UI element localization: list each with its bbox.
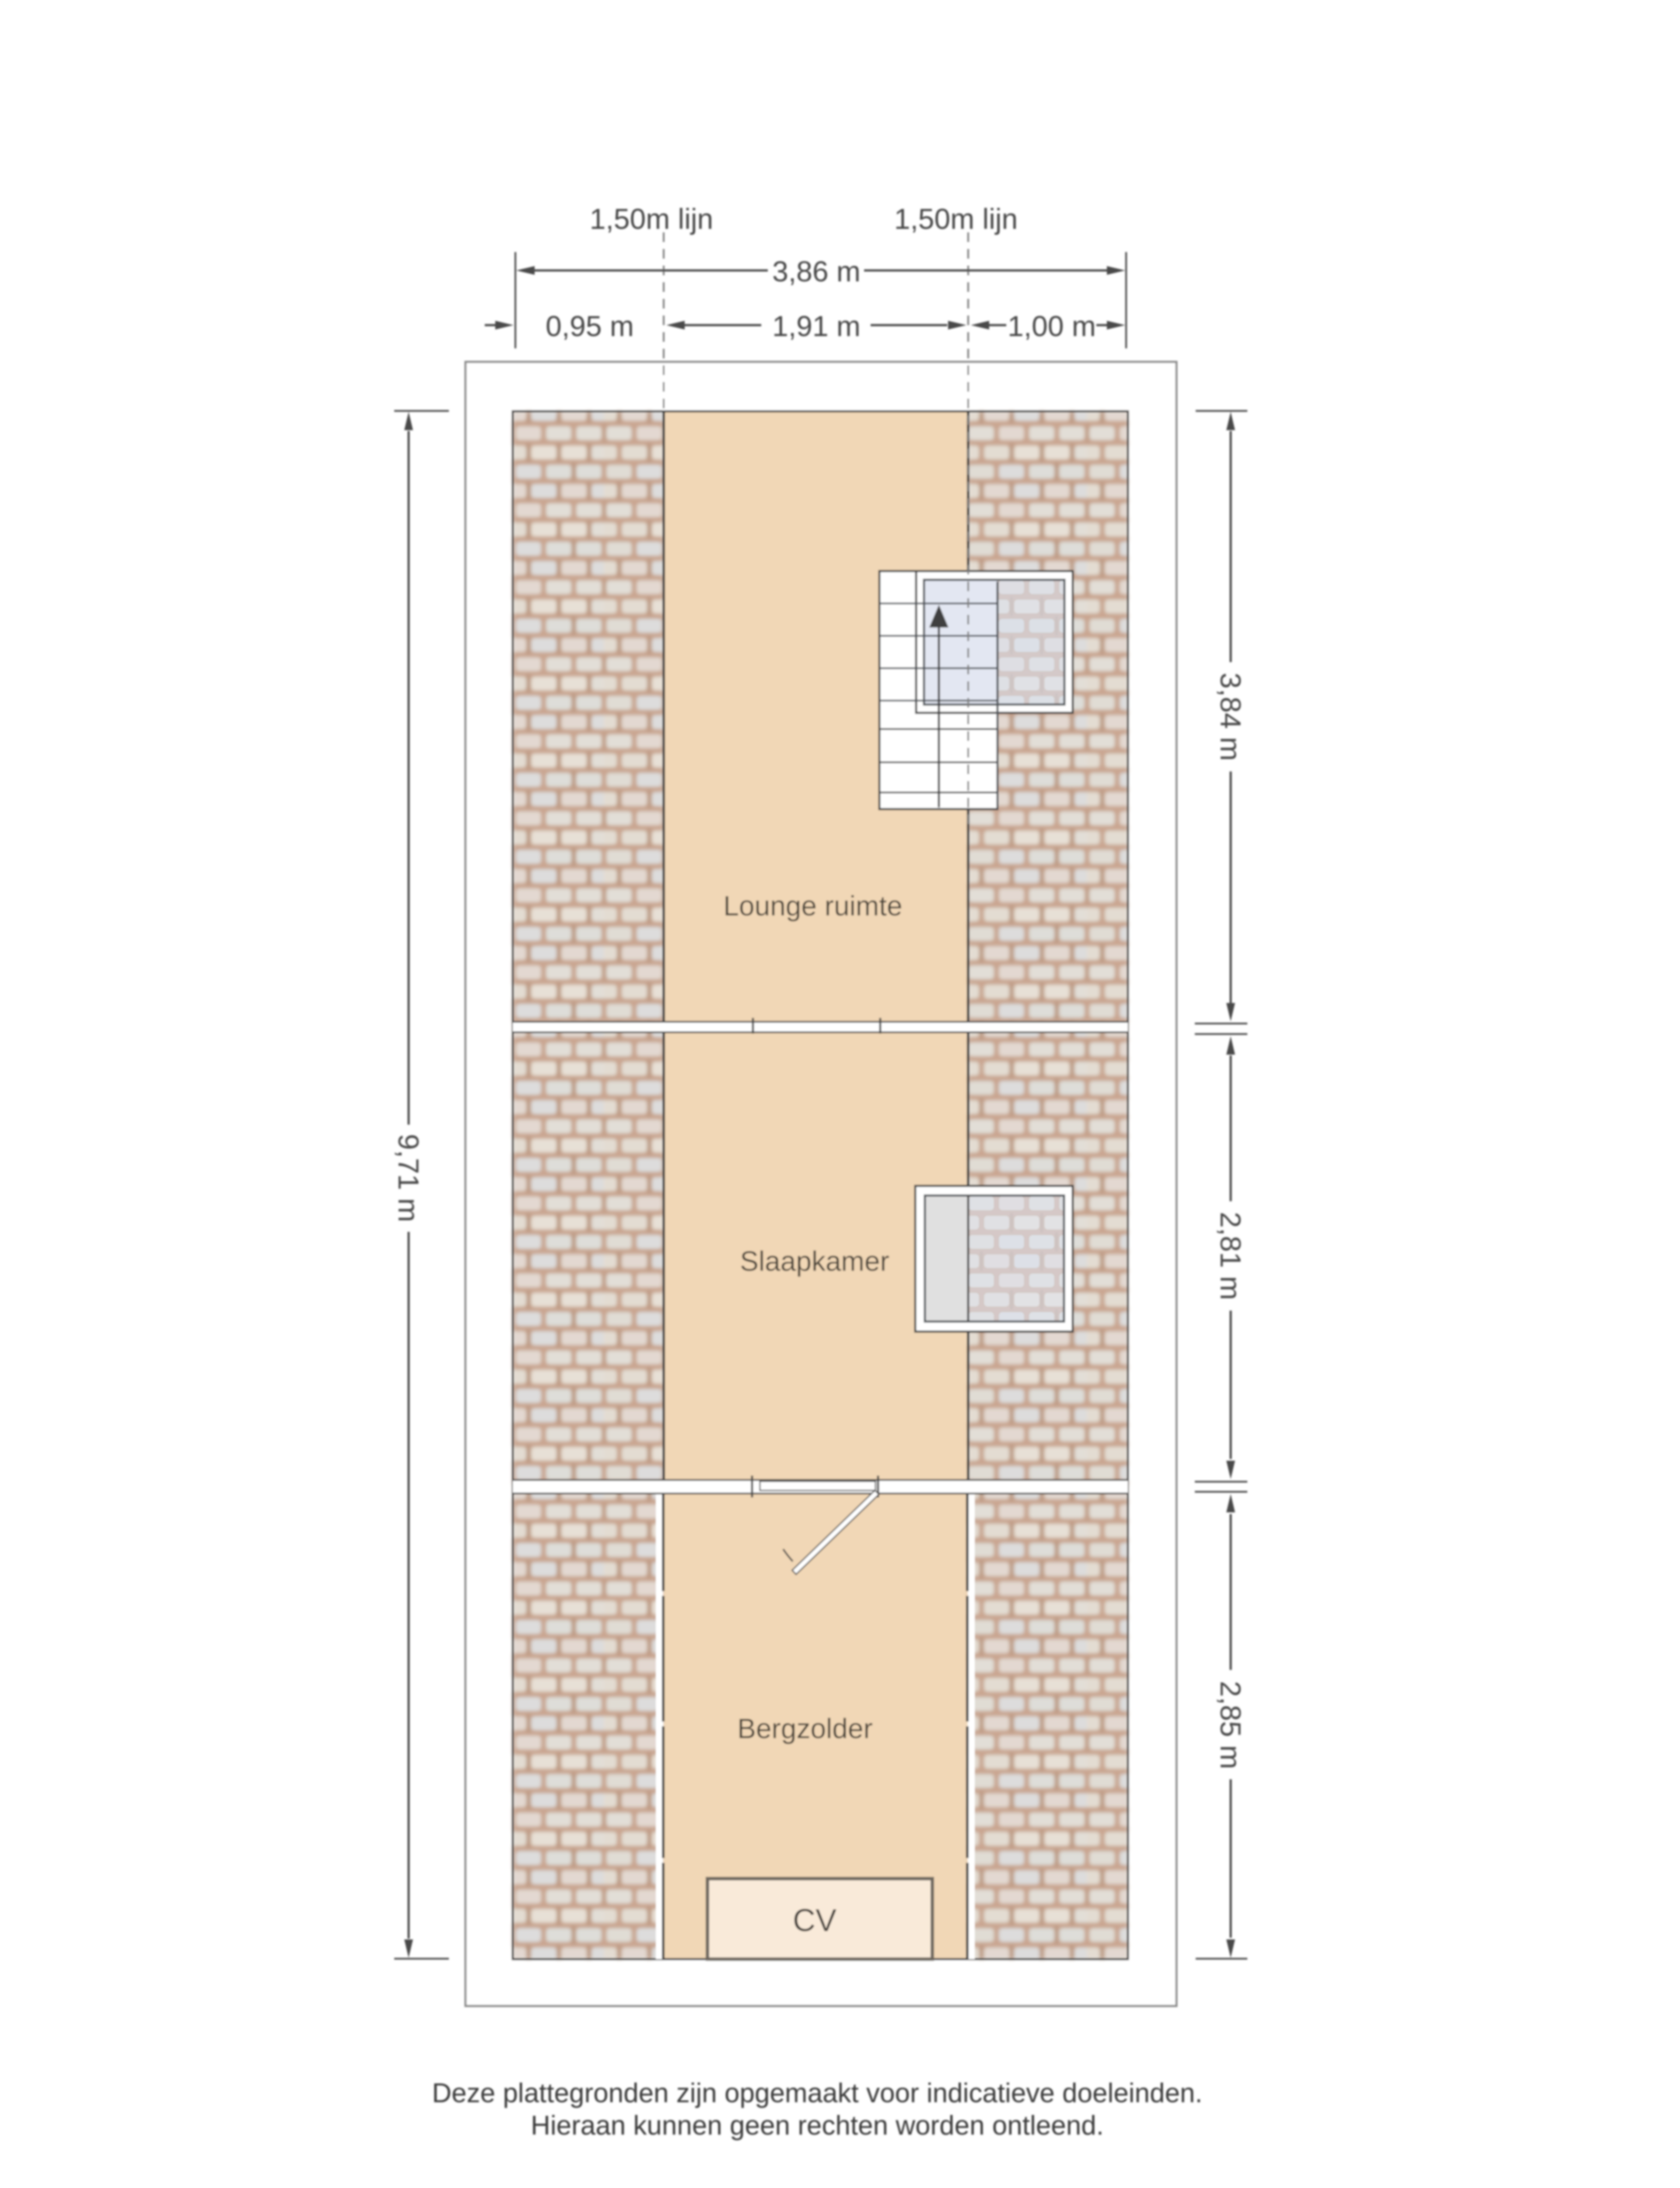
svg-text:1,91 m: 1,91 m (772, 310, 861, 342)
svg-text:Slaapkamer: Slaapkamer (740, 1245, 889, 1277)
svg-text:0,95 m: 0,95 m (546, 310, 634, 342)
svg-text:3,86 m: 3,86 m (772, 255, 861, 288)
svg-text:1,50m lijn: 1,50m lijn (590, 203, 713, 235)
svg-text:1,00 m: 1,00 m (1008, 310, 1096, 342)
svg-text:3,84 m: 3,84 m (1214, 673, 1247, 761)
svg-text:CV: CV (793, 1903, 836, 1938)
svg-text:Lounge ruimte: Lounge ruimte (723, 890, 902, 922)
svg-text:2,85 m: 2,85 m (1214, 1681, 1247, 1769)
svg-text:Bergzolder: Bergzolder (737, 1713, 873, 1744)
svg-text:Deze plattegronden zijn opgema: Deze plattegronden zijn opgemaakt voor i… (432, 2078, 1202, 2108)
svg-text:1,50m lijn: 1,50m lijn (894, 203, 1018, 235)
svg-text:Hieraan kunnen geen rechten wo: Hieraan kunnen geen rechten worden ontle… (531, 2111, 1104, 2141)
svg-text:9,71 m: 9,71 m (392, 1134, 425, 1222)
svg-text:2,81 m: 2,81 m (1214, 1212, 1247, 1300)
